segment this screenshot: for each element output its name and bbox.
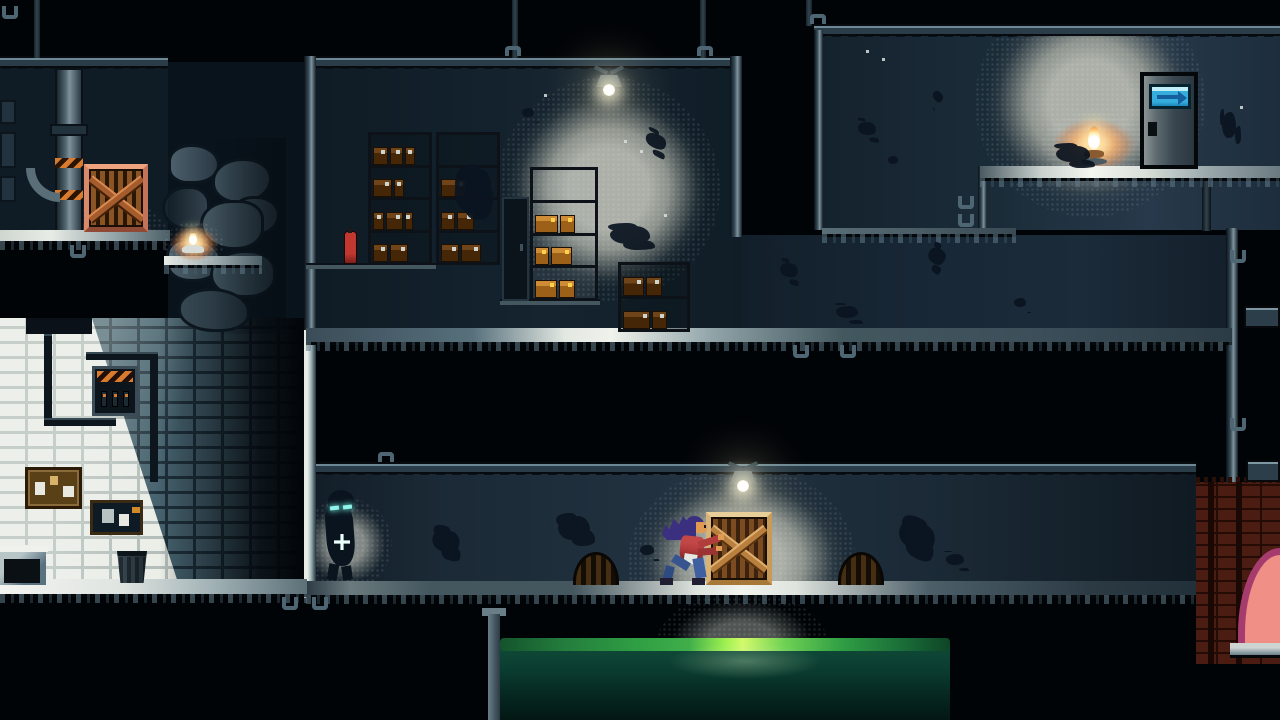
pipe-clamp: [70, 245, 86, 258]
dust-speck: [866, 50, 869, 53]
stored-box: [405, 212, 413, 230]
ceiling-beam: [814, 24, 1280, 36]
pinned-note: [102, 509, 114, 523]
wall: [814, 30, 823, 230]
platform-top-left: [0, 230, 170, 244]
boulder: [232, 196, 280, 236]
dust-speck: [624, 140, 627, 143]
stored-box: [441, 244, 459, 262]
trash-can: [115, 551, 149, 583]
boulder: [178, 288, 250, 332]
arrow-right-icon: [1178, 91, 1187, 105]
wall-splatter: [558, 516, 590, 540]
stored-box: [652, 311, 667, 329]
conduit-pipe: [44, 334, 52, 424]
pipe-clamp: [2, 6, 18, 19]
stored-box: [535, 280, 557, 298]
stored-box: [535, 215, 558, 233]
wall-splatter: [610, 226, 650, 244]
shelf-row: [371, 168, 429, 201]
conduit-pipe: [86, 352, 158, 360]
door-handle: [1148, 122, 1157, 136]
pipe-clamp: [840, 345, 856, 358]
stored-box: [373, 179, 392, 197]
wall-fixture: [0, 176, 16, 202]
fuse-box: [92, 366, 138, 416]
stored-box: [535, 247, 549, 265]
wall-fixture: [0, 100, 16, 124]
shelf-row: [621, 299, 687, 330]
stored-box: [646, 277, 662, 295]
candle-flame: [189, 232, 197, 245]
shelf-row: [533, 268, 595, 298]
shelf-row: [371, 233, 429, 263]
pipe: [1202, 181, 1211, 231]
player-shoe: [692, 578, 705, 585]
pipe-clamp: [810, 14, 826, 24]
large-pipe: [55, 68, 83, 232]
metal-locker: [502, 197, 529, 301]
wall: [304, 56, 316, 330]
exit-sign: [1149, 84, 1191, 109]
stored-box: [405, 147, 415, 165]
wall-fixture: [0, 132, 16, 168]
pipe-clamp: [958, 196, 974, 209]
ceiling-lamp: [590, 66, 628, 98]
lamp-bulb: [603, 84, 615, 96]
pinned-note: [35, 482, 45, 495]
shelf-row: [533, 236, 595, 269]
pipe-clamp: [958, 214, 974, 227]
shelf-row: [439, 135, 497, 168]
stored-box: [551, 247, 572, 265]
lamp-bulb: [737, 480, 749, 492]
wall-splatter: [640, 545, 654, 555]
stored-box: [559, 280, 575, 298]
player-shoe: [660, 578, 673, 585]
shelf-row: [533, 203, 595, 236]
lamp-arm: [744, 461, 758, 471]
stored-box: [560, 215, 575, 233]
ceiling-beam: [0, 56, 168, 68]
dust-speck: [1240, 106, 1243, 109]
shelf-row: [621, 265, 687, 299]
floor-top-right-lower: [822, 228, 1016, 237]
pinned-note: [50, 476, 58, 485]
floor-storage-level: [306, 328, 1232, 345]
counter-window: [0, 545, 50, 585]
wall: [1226, 228, 1238, 482]
stored-box: [457, 212, 474, 230]
ledge-stub: [1244, 306, 1280, 328]
dust-speck: [664, 214, 667, 217]
plank-gap: [1208, 482, 1214, 664]
shelf-row: [371, 200, 429, 233]
toxic-water-pool: [500, 638, 950, 720]
wall-splatter: [1222, 112, 1236, 138]
dust-speck: [640, 150, 643, 153]
lamp-arm: [728, 461, 742, 471]
wooden-crate: [84, 164, 148, 232]
wall-lit-edge: [304, 330, 316, 598]
conduit-pipe: [150, 352, 158, 482]
stored-box: [373, 147, 388, 165]
ledge-stub: [1246, 460, 1280, 482]
support-post: [488, 614, 500, 720]
stored-box: [390, 147, 403, 165]
exit-door: [1140, 72, 1198, 169]
stored-box: [461, 244, 480, 262]
pipe-clamp: [793, 345, 809, 358]
drain-arch: [573, 552, 619, 585]
candle: [180, 232, 206, 256]
water-glow-patch: [650, 638, 840, 684]
lamp-arm: [610, 65, 624, 75]
wall-splatter: [888, 156, 898, 164]
wall-splatter: [836, 306, 858, 318]
switch: [123, 391, 129, 407]
fire-extinguisher: [344, 231, 357, 264]
player-leg: [692, 557, 706, 579]
dust-speck: [544, 94, 547, 97]
oil-lamp-flame: [1088, 126, 1100, 150]
pinned-note: [132, 507, 140, 513]
pipe-clamp: [1230, 418, 1246, 431]
stored-box: [623, 277, 644, 295]
switch: [112, 391, 118, 407]
pipe-clamp: [505, 46, 521, 56]
counter-recess: [4, 559, 40, 583]
pipe-flange: [50, 124, 88, 136]
enemy-leg: [327, 563, 340, 580]
shadow-enemy: [320, 490, 366, 585]
pipe: [34, 0, 40, 58]
shelf-row: [533, 170, 595, 203]
cork-board: [25, 467, 82, 509]
counter-top: [0, 545, 48, 552]
hazard-band: [55, 158, 83, 168]
stored-box: [390, 244, 408, 262]
pipe-clamp: [1230, 250, 1246, 263]
stored-box: [386, 212, 403, 230]
dark-beam: [26, 318, 92, 334]
ceiling-lamp: [724, 462, 762, 494]
storage-shelf: [368, 132, 432, 265]
player-hand: [718, 534, 724, 540]
pipe-clamp: [282, 597, 298, 610]
candle-dish: [182, 245, 204, 253]
drain-arch: [838, 552, 884, 585]
wall-splatter: [946, 554, 964, 565]
storage-shelf-small: [618, 262, 690, 332]
wall-splatter: [1056, 146, 1090, 162]
arrow-right-icon: [1157, 95, 1179, 99]
player-eye: [704, 525, 706, 528]
pipe-clamp: [378, 452, 394, 462]
pipe-clamp: [697, 46, 713, 56]
pipe-clamp: [312, 597, 328, 610]
shelf-row: [371, 135, 429, 168]
player-hand: [716, 546, 722, 551]
game-viewport[interactable]: [0, 0, 1280, 720]
stored-box: [373, 244, 388, 262]
shelf-row: [439, 233, 497, 263]
ledge: [1230, 643, 1280, 658]
stored-box: [623, 311, 650, 329]
wall-splatter: [522, 108, 534, 117]
room-mid-right: [742, 235, 1228, 330]
pinned-note: [63, 486, 74, 497]
pinned-note: [119, 514, 129, 526]
switch: [101, 391, 107, 407]
dust-speck: [882, 58, 885, 61]
boulder: [212, 158, 272, 204]
conduit-pipe: [44, 418, 116, 426]
wall-splatter: [1014, 298, 1026, 307]
player-character: [660, 512, 724, 585]
ceiling-beam: [306, 56, 742, 68]
stored-box: [373, 212, 384, 230]
wall: [730, 56, 742, 237]
stored-box: [441, 212, 455, 230]
hazard-stripes: [97, 371, 133, 382]
stored-box: [394, 179, 404, 197]
lamp-arm: [594, 65, 608, 75]
notice-board: [90, 500, 143, 535]
boulder: [168, 144, 220, 184]
ledge-top-right: [980, 166, 1280, 181]
enemy-leg: [341, 565, 353, 580]
storage-shelf-lit: [530, 167, 598, 301]
